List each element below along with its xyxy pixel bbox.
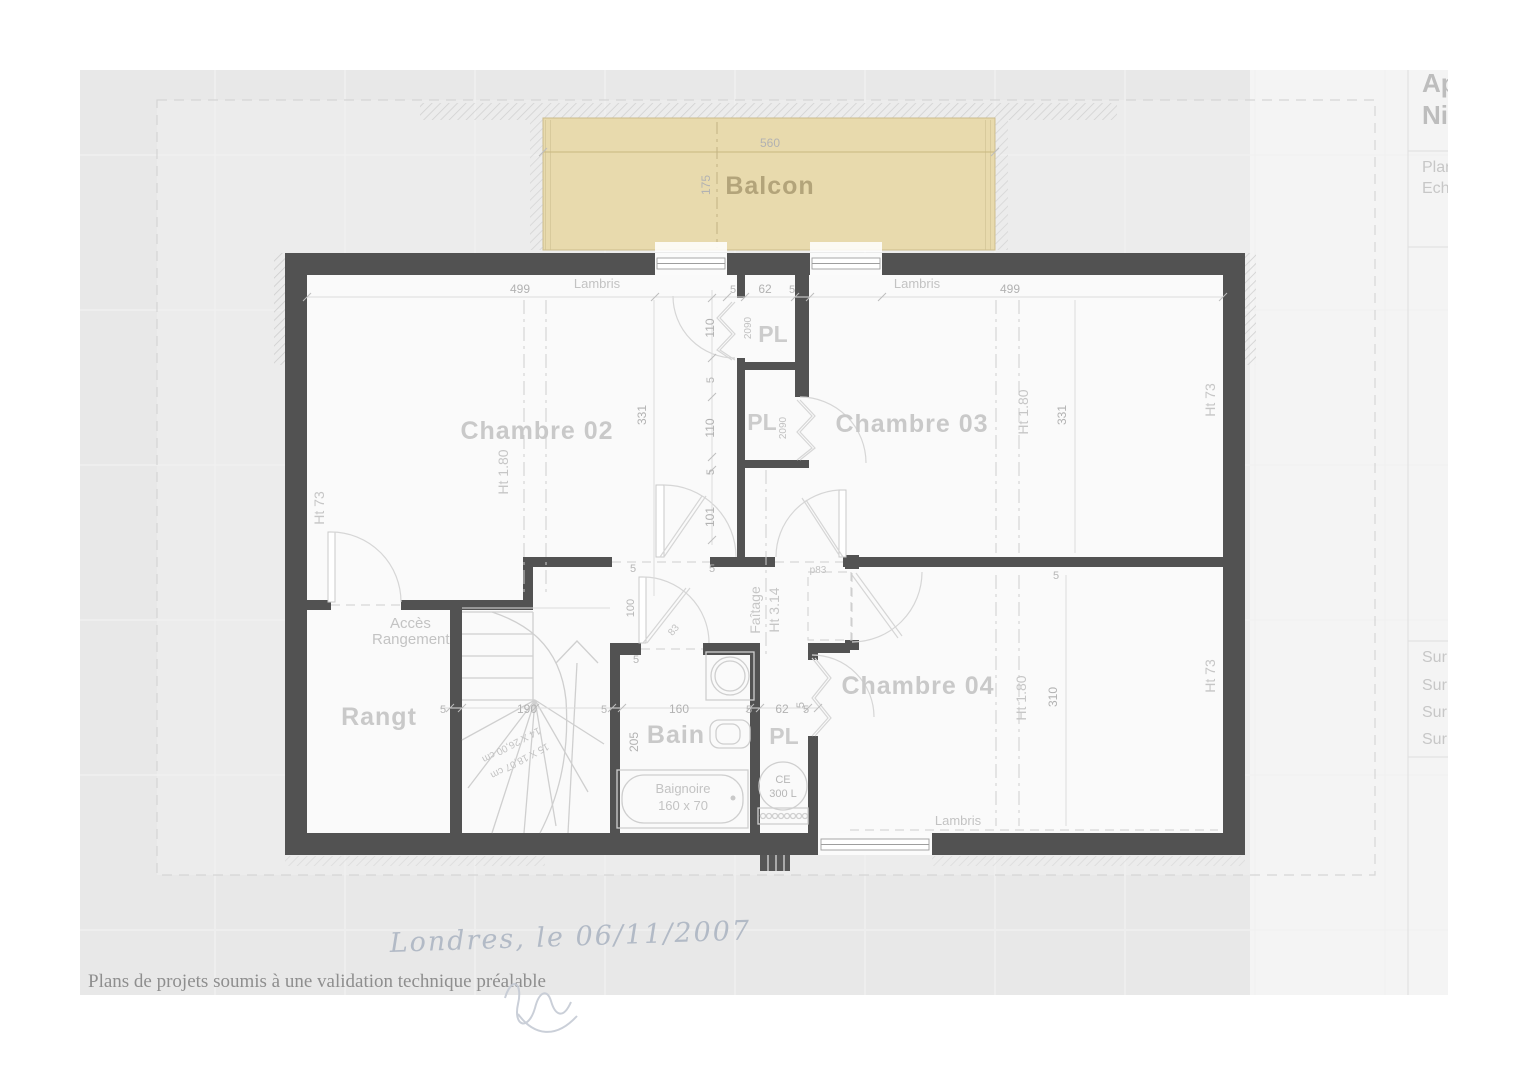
dim-top-5a: 5 [730,284,736,296]
title-block-echelle-label: Ech [1422,180,1450,197]
room-label-bain: Bain [647,721,705,749]
dim-chain-62: 62 [775,702,789,716]
door-label-2090-b: 2090 [778,416,789,439]
bathtub-label-line1: Baignoire [656,781,711,796]
room-label-pl-ce: PL [769,723,798,749]
dim-chain-160: 160 [669,702,689,716]
dim-110a: 110 [703,318,717,337]
title-block-surface-2: Sur [1422,677,1448,694]
dim-top-62: 62 [758,282,772,296]
bathtub-label-line2: 160 x 70 [658,798,708,813]
water-heater-label-line2: 300 L [769,788,797,800]
room-label-chambre04: Chambre 04 [841,672,994,700]
floor-plan-drawing: 560 175 Balcon [0,0,1528,1080]
faitage-line2: Ht 3.14 [766,587,782,632]
dim-c04-310: 310 [1046,687,1060,707]
title-block-surface-1: Sur [1422,649,1448,666]
dim-hall-5b: 5 [709,563,715,575]
ht180-chambre02: Ht 1.80 [495,449,511,494]
roof-hatch-band [420,103,1117,120]
caption-text: Plans de projets soumis à une validation… [88,971,546,992]
dim-balcon-depth: 175 [699,175,713,195]
room-label-chambre03: Chambre 03 [835,410,988,438]
dim-c03-331: 331 [1055,405,1069,425]
title-block-surface-3: Sur [1422,704,1448,721]
dim-bain-100: 100 [625,599,637,617]
balcony: 560 175 Balcon [530,118,1008,252]
title-block-project-line2: Ni [1422,100,1448,130]
dim-chain-190: 190 [517,702,537,716]
ht180-chambre04: Ht 1.80 [1013,675,1029,720]
window-balcony-right [810,253,882,275]
ht73-right-bottom: Ht 73 [1202,659,1218,693]
dim-101: 101 [703,507,717,527]
dim-chain-5a: 5 [440,704,446,716]
dim-top-5b: 5 [789,284,795,296]
window-bottom [818,833,932,855]
acces-rangement-line1: Accès [390,615,431,632]
window-balcony-left [655,253,727,275]
dim-chain-5b: 5 [601,704,607,716]
dim-bain-205: 205 [627,732,641,752]
dim-hall-5a: 5 [630,563,636,575]
scanned-floor-plan-page: 560 175 Balcon [0,0,1528,1080]
dim-top-right-499: 499 [1000,282,1020,296]
lambris-top-left: Lambris [574,276,621,291]
ht180-chambre03: Ht 1.80 [1015,389,1031,434]
room-label-balcon: Balcon [725,172,814,200]
door-label-2090-a: 2090 [743,316,754,339]
lambris-bottom: Lambris [935,813,982,828]
water-heater-label-line1: CE [775,774,790,786]
lambris-top-right: Lambris [894,276,941,291]
dim-bain-5: 5 [633,654,639,666]
ht73-right-top: Ht 73 [1202,383,1218,417]
dim-c04-5: 5 [1053,570,1059,582]
room-label-rangt: Rangt [341,703,417,731]
title-block-surface-4: Sur [1422,731,1448,748]
door-label-p83: p83 [810,565,827,576]
dim-chain-5c: 5 [746,704,752,716]
dim-5a: 5 [705,377,717,383]
faitage-line1: Faîtage [747,586,763,634]
dim-pl4-5: 5 [795,702,807,708]
dim-top-left-499: 499 [510,282,530,296]
dim-balcon-width: 560 [760,136,780,150]
dim-5b: 5 [705,469,717,475]
dim-110b: 110 [703,418,717,437]
chimney-block [760,855,790,871]
room-label-pl-mid: PL [747,409,776,435]
building-interior [307,275,1223,833]
dim-c02-331: 331 [635,405,649,425]
room-label-chambre02: Chambre 02 [460,417,613,445]
room-label-pl-top: PL [758,321,787,347]
acces-rangement-line2: Rangement [372,631,450,648]
ht73-left: Ht 73 [311,491,327,525]
